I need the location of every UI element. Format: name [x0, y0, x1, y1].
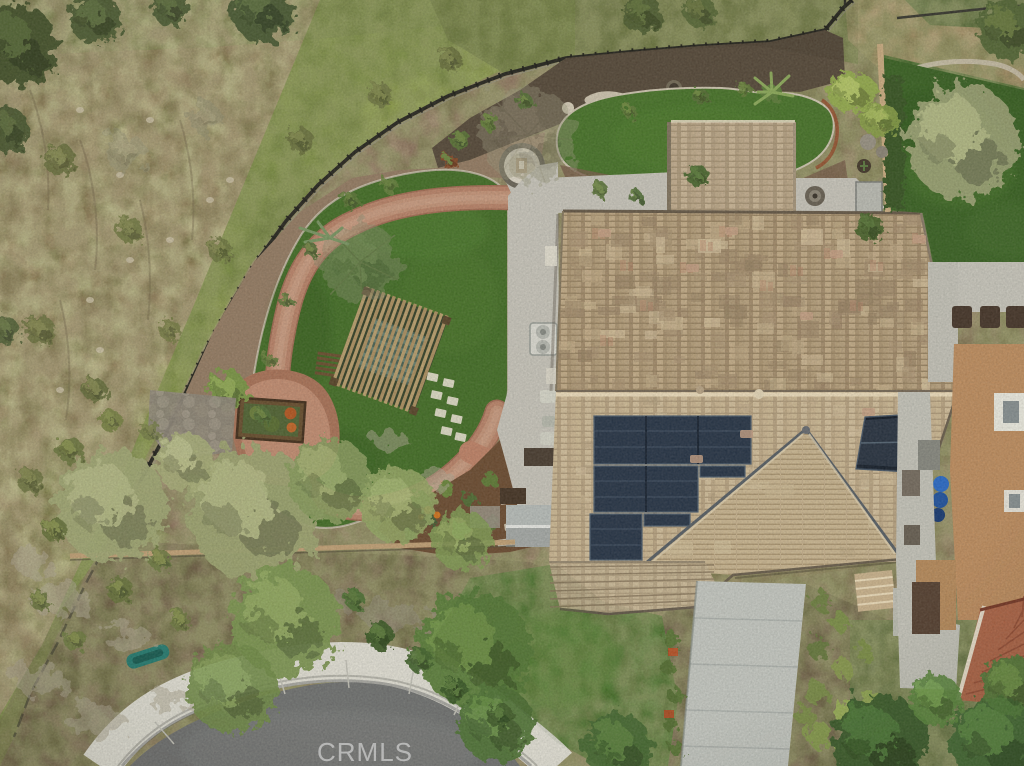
svg-text:CRMLS: CRMLS: [317, 737, 413, 766]
